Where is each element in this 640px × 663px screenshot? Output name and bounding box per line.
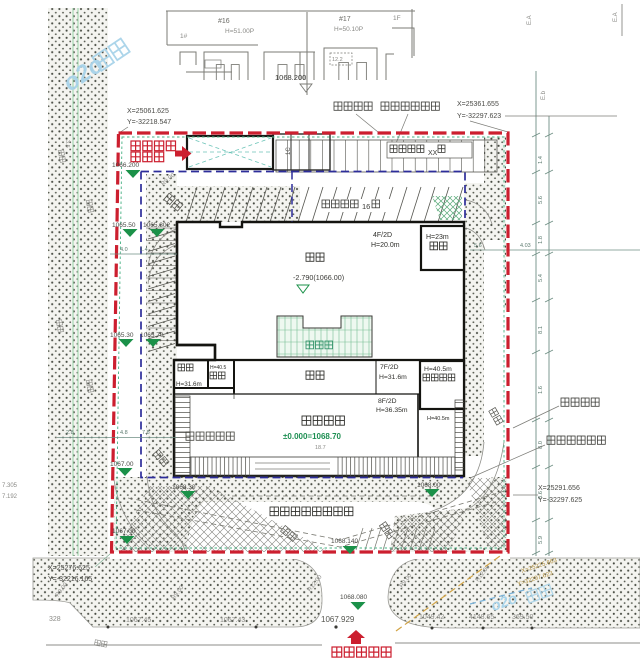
- svg-text:5.6: 5.6: [538, 196, 544, 204]
- svg-text:1068.00: 1068.00: [417, 482, 441, 489]
- svg-text:1F: 1F: [393, 15, 401, 22]
- svg-text:H=31.6m: H=31.6m: [176, 381, 202, 388]
- svg-text:1065.50: 1065.50: [112, 222, 136, 229]
- svg-text:1068.080: 1068.080: [340, 594, 367, 601]
- svg-text:H=40.5m: H=40.5m: [427, 416, 450, 422]
- svg-text:1065.30: 1065.30: [110, 332, 134, 339]
- svg-text:±0.000=1068.70: ±0.000=1068.70: [283, 432, 342, 441]
- svg-text:4.0: 4.0: [120, 247, 128, 253]
- svg-text:7.8: 7.8: [142, 430, 150, 436]
- svg-text:-2.790(1066.00): -2.790(1066.00): [293, 273, 344, 282]
- svg-text:X=25361.655: X=25361.655: [457, 101, 499, 108]
- svg-text:1#: 1#: [180, 33, 188, 40]
- svg-text:5.9: 5.9: [538, 536, 544, 544]
- svg-text:1.8: 1.8: [538, 236, 544, 244]
- svg-text:18.7: 18.7: [315, 445, 326, 451]
- svg-text:1068.30: 1068.30: [172, 484, 196, 491]
- svg-text:1067.45: 1067.45: [126, 617, 151, 624]
- svg-text:E.A: E.A: [527, 15, 533, 25]
- svg-text:5.6: 5.6: [474, 243, 482, 249]
- svg-text:12.2: 12.2: [332, 57, 343, 63]
- svg-text:1049.42: 1049.42: [419, 614, 444, 621]
- svg-text:XX: XX: [428, 150, 438, 157]
- svg-text:16: 16: [362, 202, 370, 211]
- svg-text:1.4: 1.4: [140, 247, 148, 253]
- svg-text:7.192: 7.192: [2, 494, 18, 500]
- svg-text:1067.43: 1067.43: [220, 617, 245, 624]
- svg-text:1.4: 1.4: [538, 155, 544, 164]
- svg-text:Y=-32297.625: Y=-32297.625: [538, 497, 582, 504]
- svg-text:Y=-32216.165: Y=-32216.165: [48, 576, 92, 583]
- svg-text:1065.802: 1065.802: [143, 222, 170, 229]
- svg-text:H=31.6m: H=31.6m: [379, 374, 407, 381]
- svg-text:X=25276.625: X=25276.625: [48, 565, 90, 572]
- svg-text:H=36.35m: H=36.35m: [376, 407, 408, 414]
- svg-text:1.6: 1.6: [538, 386, 544, 394]
- svg-text:E.b: E.b: [541, 90, 547, 100]
- svg-text:#17: #17: [339, 16, 351, 23]
- svg-text:1065.70: 1065.70: [140, 332, 164, 339]
- svg-text:7F/2D: 7F/2D: [380, 364, 399, 371]
- svg-text:1067.929: 1067.929: [321, 615, 355, 624]
- svg-text:1068.200: 1068.200: [275, 73, 306, 82]
- svg-text:4.8: 4.8: [120, 430, 128, 436]
- svg-text:H=23m: H=23m: [426, 234, 449, 241]
- svg-text:5.4: 5.4: [538, 273, 544, 282]
- svg-text:E.A: E.A: [613, 12, 619, 22]
- svg-text:H=20.0m: H=20.0m: [371, 242, 400, 249]
- svg-text:H=51.00P: H=51.00P: [225, 28, 254, 35]
- svg-text:1C: 1C: [286, 147, 292, 155]
- svg-text:H=50.10P: H=50.10P: [334, 26, 363, 33]
- svg-text:4F/2D: 4F/2D: [373, 232, 392, 239]
- svg-text:369.50: 369.50: [512, 614, 534, 621]
- svg-text:X=25291.656: X=25291.656: [538, 485, 580, 492]
- svg-text:Y=-32297.623: Y=-32297.623: [457, 113, 501, 120]
- svg-text:H=40.5: H=40.5: [210, 365, 226, 371]
- svg-text:7.305: 7.305: [2, 483, 18, 489]
- svg-text:1066.200: 1066.200: [112, 162, 139, 169]
- svg-text:2.8: 2.8: [66, 430, 74, 436]
- svg-text:H=40.5m: H=40.5m: [424, 366, 452, 373]
- svg-text:1068.140: 1068.140: [331, 538, 358, 545]
- svg-text:3.5: 3.5: [64, 140, 70, 148]
- svg-text:X=25061.625: X=25061.625: [127, 108, 169, 115]
- svg-text:328: 328: [49, 616, 61, 623]
- svg-text:4148.65: 4148.65: [469, 614, 494, 621]
- svg-text:1067.00: 1067.00: [112, 528, 136, 535]
- svg-text:8.1: 8.1: [538, 326, 544, 334]
- svg-text:8F/2D: 8F/2D: [378, 398, 397, 405]
- svg-text:1067.00: 1067.00: [110, 461, 134, 468]
- svg-text:Y=-32218.547: Y=-32218.547: [127, 119, 171, 126]
- svg-text:#16: #16: [218, 18, 230, 25]
- svg-text:4.03: 4.03: [520, 243, 531, 249]
